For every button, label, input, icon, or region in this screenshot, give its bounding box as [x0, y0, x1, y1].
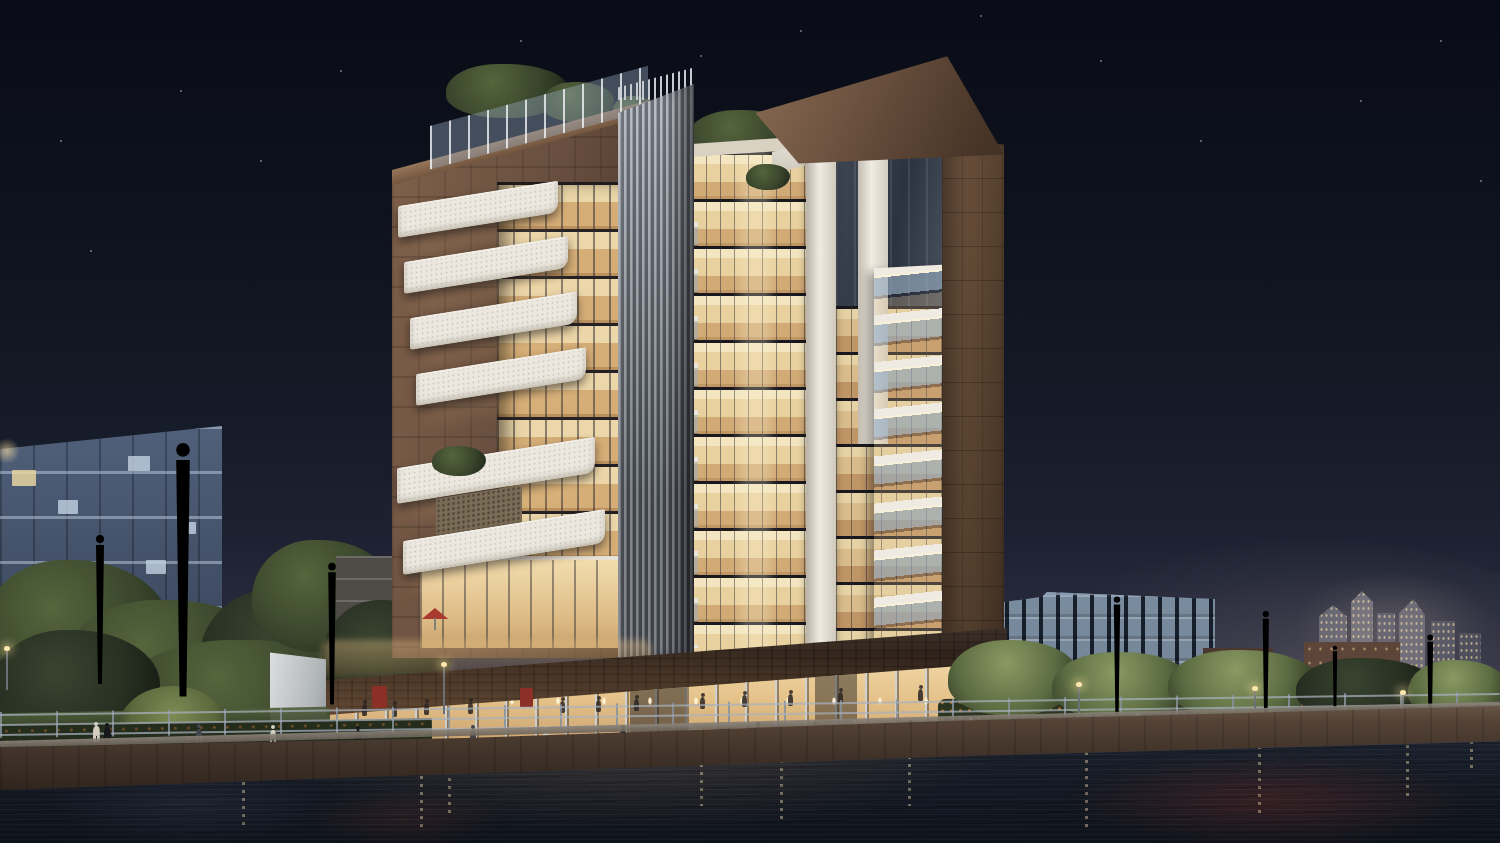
palm-tree [1069, 578, 1165, 722]
night-waterfront-rendering [0, 0, 1500, 843]
palm-tree [40, 512, 160, 692]
palm-tree [0, 478, 39, 649]
palm-tree [275, 541, 389, 712]
